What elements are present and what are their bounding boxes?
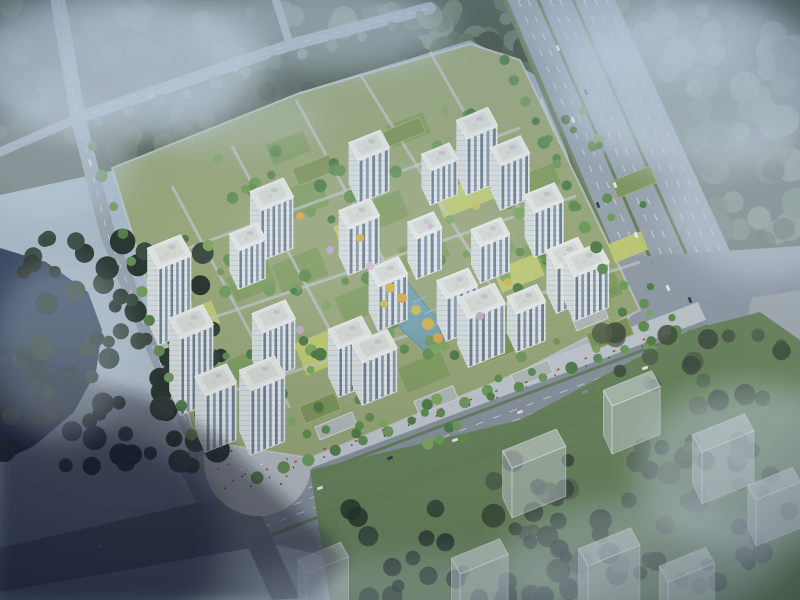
- aerial-rendering: [0, 0, 800, 600]
- vignette-overlay: [0, 0, 800, 600]
- aerial-render-viewport: [0, 0, 800, 600]
